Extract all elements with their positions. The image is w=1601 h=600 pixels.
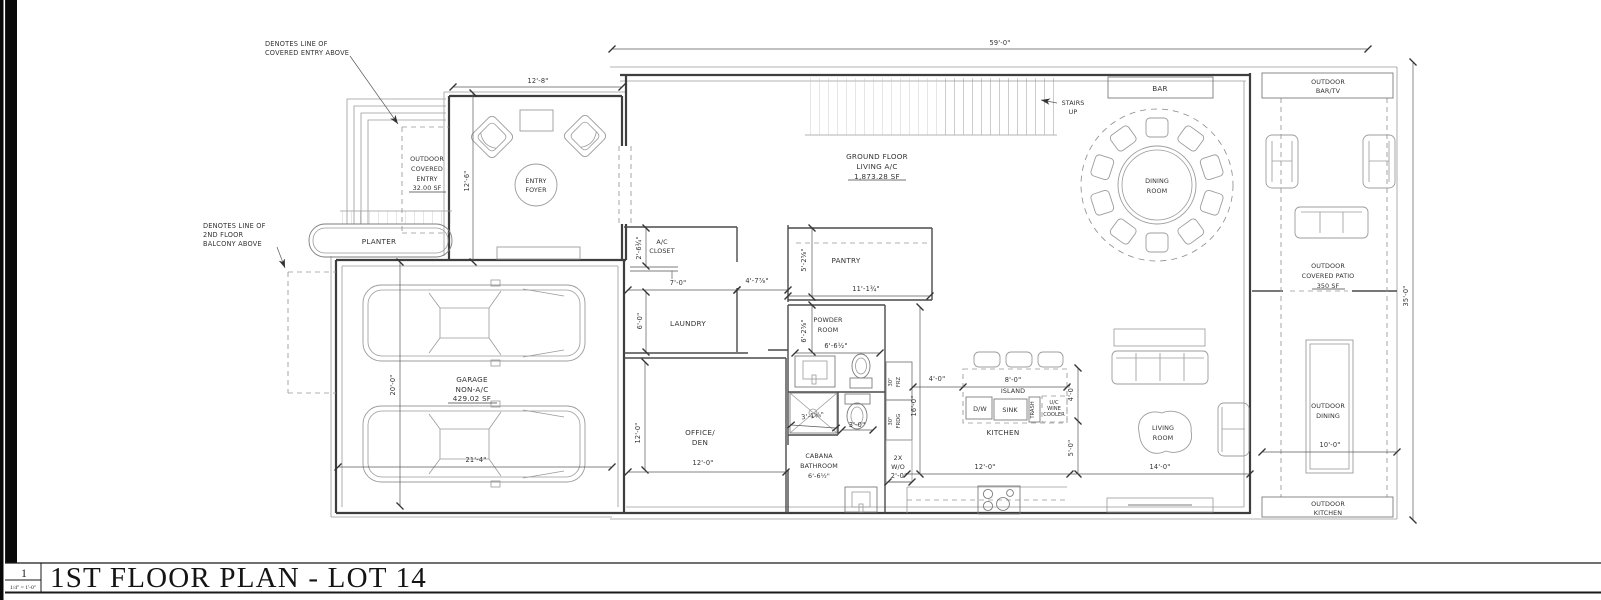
living-room-label: LIVING [1152,424,1174,432]
living-furniture [1107,329,1249,512]
svg-text:32.00 SF: 32.00 SF [413,184,442,192]
coffee-table-icon [1139,411,1192,453]
sink-label: SINK [1002,406,1018,414]
svg-text:KITCHEN: KITCHEN [1314,509,1343,517]
svg-text:COOLER: COOLER [1043,412,1065,418]
svg-text:ENTRY: ENTRY [416,175,437,183]
patio-furniture [1262,73,1395,517]
dim-office-w: 12'-0" [692,459,713,467]
svg-text:ROOM: ROOM [1153,434,1173,442]
outdoor-covered-entry-label: OUTDOOR [410,155,444,163]
foyer-table-icon [515,164,557,206]
dim-oven-w: 2'-0" [891,472,908,480]
kitchen-fixtures [886,352,1067,514]
floor-plan-sheet: DENOTES LINE OF COVERED ENTRY ABOVE DENO… [0,0,1601,600]
dim-island-w: 8'-0" [1005,376,1022,384]
sheet-title: 1ST FLOOR PLAN - LOT 14 [50,562,427,594]
dim-patio-w: 10'-0" [1319,441,1340,449]
note-covered-entry: DENOTES LINE OF [265,40,328,48]
dim-island-side: 4'-0" [1067,385,1075,402]
title-block: 1 1/4" = 1'-0" 1ST FLOOR PLAN - LOT 14 [5,562,1601,594]
outdoor-kitchen-label: OUTDOOR [1311,500,1345,508]
dishwasher-label: D/W [973,405,987,413]
svg-text:COVERED PATIO: COVERED PATIO [1302,272,1355,280]
dim-foyer-w: 12'-8" [527,77,548,85]
svg-text:FOYER: FOYER [525,186,547,194]
outdoor-patio-label: OUTDOOR [1311,262,1345,270]
garage-label: GARAGE [456,375,488,384]
armchair-icon [469,114,514,159]
svg-text:1,873.28 SF: 1,873.28 SF [854,172,900,181]
floor-plan-drawing: DENOTES LINE OF COVERED ENTRY ABOVE DENO… [0,0,1601,600]
ac-closet-label: A/C [656,238,668,246]
ground-floor-label: GROUND FLOOR [846,152,908,161]
dim-powder-h: 6'-2⅝" [800,319,808,342]
dim-island-gap: 4'-0" [929,375,946,383]
dim-house-width: 59'-0" [989,39,1010,47]
dim-garage-h: 20'-0" [389,374,397,395]
sheet-number: 1 [21,566,27,580]
svg-text:NON-A/C: NON-A/C [456,385,489,394]
svg-text:CLOSET: CLOSET [649,247,674,255]
wall-ovens-label: 2X [894,454,903,462]
dim-living-gap: 5'-0" [1067,440,1075,457]
dim-closet-w: 7'-0" [670,279,687,287]
svg-text:ROOM: ROOM [818,326,838,334]
dining-set [1081,109,1233,261]
dim-living-w: 14'-0" [1149,463,1170,471]
stairs-label: STAIRS [1062,99,1085,107]
stairs [805,78,1057,135]
dim-garage-w: 21'-4" [465,456,486,464]
dining-room-label: DINING [1145,177,1169,185]
pantry-label: PANTRY [832,256,861,265]
entry-foyer-label: ENTRY [525,177,546,185]
sheet-scale: 1/4" = 1'-0" [10,585,36,591]
bath-fixtures [790,354,877,512]
powder-room-label: POWDER [813,316,843,324]
trash-label: TRASH [1030,401,1036,419]
svg-text:BAR/TV: BAR/TV [1316,87,1341,95]
dim-office-h: 12'-0" [634,422,642,443]
side-table-icon [520,110,553,131]
outdoor-dining-label: OUTDOOR [1311,402,1345,410]
svg-text:COVERED ENTRY ABOVE: COVERED ENTRY ABOVE [265,49,349,57]
fridge-label: 30" [888,417,894,426]
svg-text:2ND FLOOR: 2ND FLOOR [203,231,244,239]
svg-text:BATHROOM: BATHROOM [800,462,838,470]
dim-lot-depth: 35'-0" [1402,285,1410,306]
freezer-label: 30" [888,378,894,387]
svg-text:350 SF: 350 SF [1317,282,1340,290]
bar-label: BAR [1152,84,1168,93]
svg-text:COVERED: COVERED [411,165,443,173]
dim-kitchen-h: 16'-0" [910,395,918,416]
svg-text:LIVING A/C: LIVING A/C [856,162,897,171]
svg-text:FRDG: FRDG [896,414,902,429]
dim-hall-w: 4'-7⅞" [745,277,768,285]
svg-text:6'-6½": 6'-6½" [808,472,830,480]
svg-text:DINING: DINING [1316,412,1340,420]
outdoor-bar-tv-label: OUTDOOR [1311,78,1345,86]
svg-text:BALCONY ABOVE: BALCONY ABOVE [203,240,262,248]
svg-text:429.02 SF: 429.02 SF [453,394,491,403]
dim-pantry-h: 5'-2⅝" [800,248,808,271]
dim-foyer-h: 12'-6" [463,170,471,191]
cabana-bath-label: CABANA [805,452,833,460]
console-icon [497,247,580,259]
armchair-icon [562,113,607,158]
svg-text:DEN: DEN [692,438,708,447]
note-balcony: DENOTES LINE OF [203,222,266,230]
labels: DENOTES LINE OF COVERED ENTRY ABOVE DENO… [203,40,1354,517]
dim-powder-w: 6'-6½" [824,342,847,350]
kitchen-label: KITCHEN [987,428,1020,437]
planter-label: PLANTER [362,237,396,246]
dim-pantry-w: 11'-1¾" [852,285,880,293]
laundry-label: LAUNDRY [670,319,706,328]
dim-laundry-h: 6'-0" [636,313,644,330]
svg-text:UP: UP [1069,108,1078,116]
dim-kitchen-w: 12'-0" [974,463,995,471]
svg-text:W/O: W/O [891,463,905,471]
island-label: ISLAND [1001,387,1025,395]
office-den-label: OFFICE/ [685,428,715,437]
svg-text:ROOM: ROOM [1147,187,1167,195]
walls [336,73,1397,514]
dim-wc-w: 3'-0" [849,421,866,429]
svg-text:FRZ: FRZ [896,376,902,387]
sheet-edge-bar [0,0,17,600]
dim-ac-closet: 2'-6¾" [635,236,643,259]
